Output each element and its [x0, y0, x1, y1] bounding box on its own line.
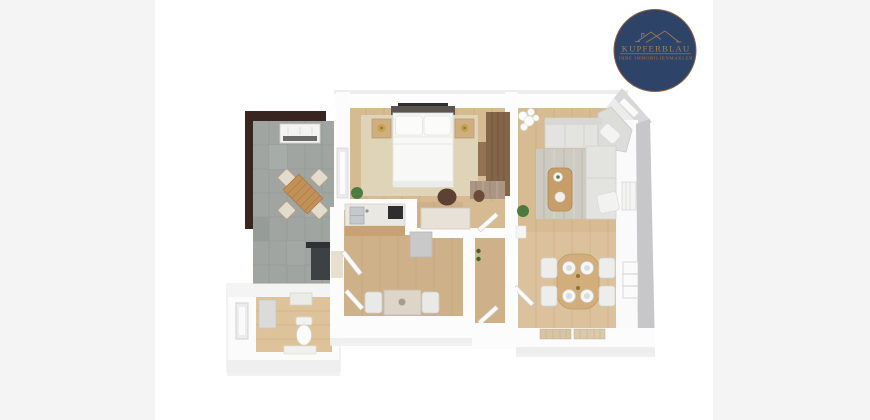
- svg-text:IHRE IMMOBILIENMAKLER: IHRE IMMOBILIENMAKLER: [619, 56, 693, 61]
- svg-text:KUPFERBLAU: KUPFERBLAU: [622, 44, 691, 54]
